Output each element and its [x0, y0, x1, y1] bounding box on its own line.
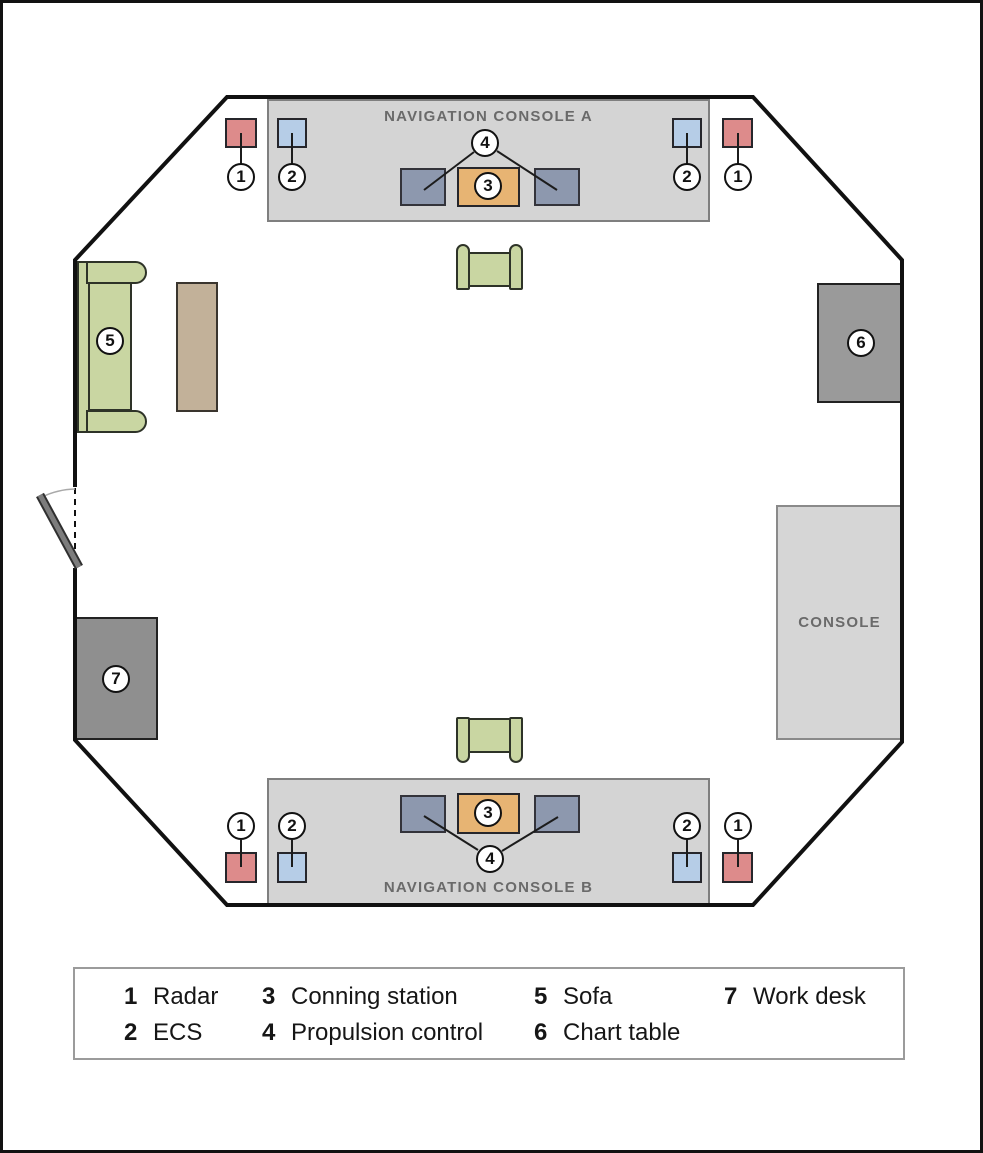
- propulsion-square-a-left: [400, 168, 446, 206]
- legend-item: 2ECS: [124, 1015, 218, 1051]
- propulsion-square-b-right: [534, 795, 580, 833]
- legend-item-label: Sofa: [563, 983, 612, 1010]
- legend-item: 6Chart table: [534, 1015, 680, 1051]
- legend-item: 1Radar: [124, 979, 218, 1015]
- legend-column: 7Work desk: [724, 979, 866, 1015]
- badge-chart-table: 6: [847, 329, 875, 357]
- chair-armrest: [509, 244, 523, 290]
- ecs-square-a-left: [277, 118, 307, 148]
- bridge-floorplan: NAVIGATION CONSOLE A NAVIGATION CONSOLE …: [0, 0, 983, 1153]
- legend-item-number: 6: [534, 1015, 563, 1051]
- badge-conning-station: 3: [474, 172, 502, 200]
- badge-ecs: 2: [673, 812, 701, 840]
- propulsion-square-b-left: [400, 795, 446, 833]
- legend-item-label: Radar: [153, 983, 218, 1010]
- badge-conning-station: 3: [474, 799, 502, 827]
- legend-item-label: ECS: [153, 1019, 202, 1046]
- side-table: [176, 282, 218, 412]
- sofa-armrest-top: [86, 261, 147, 284]
- chair-armrest: [456, 717, 470, 763]
- navigation-console-b-label: NAVIGATION CONSOLE B: [269, 879, 708, 896]
- propulsion-square-a-right: [534, 168, 580, 206]
- legend-item-number: 3: [262, 979, 291, 1015]
- legend-item-label: Conning station: [291, 983, 458, 1010]
- legend-item-number: 5: [534, 979, 563, 1015]
- door-swing-arc: [42, 489, 75, 497]
- legend-item-label: Work desk: [753, 983, 866, 1010]
- sofa-back: [77, 261, 90, 433]
- legend-item-number: 2: [124, 1015, 153, 1051]
- ecs-square-b-right: [672, 852, 702, 883]
- legend-column: 3Conning station 4Propulsion control: [262, 979, 483, 1051]
- radar-square-a-left: [225, 118, 257, 148]
- chair-armrest: [456, 244, 470, 290]
- badge-radar: 1: [227, 163, 255, 191]
- badge-ecs: 2: [278, 812, 306, 840]
- legend-item: 4Propulsion control: [262, 1015, 483, 1051]
- legend-column: 5Sofa 6Chart table: [534, 979, 680, 1051]
- legend-column: 1Radar 2ECS: [124, 979, 218, 1051]
- side-console-label: CONSOLE: [798, 614, 881, 631]
- callout-connector-lines: [241, 133, 738, 867]
- badge-propulsion-control: 4: [471, 129, 499, 157]
- badge-propulsion-control: 4: [476, 845, 504, 873]
- badge-ecs: 2: [278, 163, 306, 191]
- ecs-square-a-right: [672, 118, 702, 148]
- badge-ecs: 2: [673, 163, 701, 191]
- legend-item-number: 7: [724, 979, 753, 1015]
- badge-radar: 1: [227, 812, 255, 840]
- legend-item-number: 1: [124, 979, 153, 1015]
- legend-item-label: Propulsion control: [291, 1019, 483, 1046]
- badge-radar: 1: [724, 812, 752, 840]
- chair-seat: [468, 718, 511, 753]
- radar-square-a-right: [722, 118, 753, 148]
- ecs-square-b-left: [277, 852, 307, 883]
- side-console: CONSOLE: [776, 505, 903, 740]
- legend-item: 7Work desk: [724, 979, 866, 1015]
- door-panel-outline: [40, 495, 79, 567]
- navigation-console-a-label: NAVIGATION CONSOLE A: [269, 108, 708, 125]
- legend-box: 1Radar 2ECS 3Conning station 4Propulsion…: [73, 967, 905, 1060]
- legend-item: 3Conning station: [262, 979, 483, 1015]
- legend-item: 5Sofa: [534, 979, 680, 1015]
- sofa-armrest-bottom: [86, 410, 147, 433]
- badge-work-desk: 7: [102, 665, 130, 693]
- legend-item-number: 4: [262, 1015, 291, 1051]
- badge-sofa: 5: [96, 327, 124, 355]
- door-panel: [40, 495, 79, 567]
- radar-square-b-left: [225, 852, 257, 883]
- chair-seat: [468, 252, 511, 287]
- badge-radar: 1: [724, 163, 752, 191]
- legend-item-label: Chart table: [563, 1019, 680, 1046]
- chair-armrest: [509, 717, 523, 763]
- radar-square-b-right: [722, 852, 753, 883]
